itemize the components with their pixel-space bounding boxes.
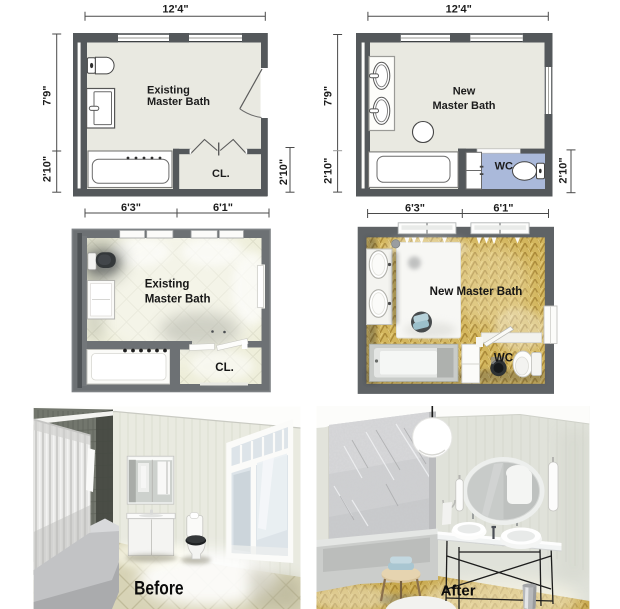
svg-text:6'3": 6'3" [121,202,141,214]
svg-text:WC: WC [495,161,513,173]
svg-text:Before: Before [134,577,184,599]
svg-text:New: New [453,86,476,98]
svg-text:6'1": 6'1" [493,203,513,215]
svg-text:New Master Bath: New Master Bath [430,286,523,298]
svg-text:CL.: CL. [215,362,234,374]
svg-text:WC: WC [494,353,513,365]
svg-text:Master Bath: Master Bath [147,96,210,108]
svg-text:Master Bath: Master Bath [433,100,496,112]
svg-text:2'10": 2'10" [322,158,334,184]
svg-text:CL.: CL. [212,168,230,180]
svg-text:2'10": 2'10" [278,159,290,185]
svg-text:Master Bath: Master Bath [145,293,211,305]
svg-text:Existing: Existing [147,85,190,97]
svg-text:6'3": 6'3" [405,203,425,215]
svg-text:12'4": 12'4" [446,4,472,16]
svg-text:After: After [441,583,476,600]
svg-text:6'1": 6'1" [213,202,233,214]
svg-text:7'9": 7'9" [322,86,334,106]
svg-text:Existing: Existing [145,278,190,290]
svg-text:7'9": 7'9" [42,86,54,106]
svg-text:2'10": 2'10" [558,157,570,183]
svg-text:12'4": 12'4" [162,4,188,16]
svg-text:2'10": 2'10" [42,156,54,182]
